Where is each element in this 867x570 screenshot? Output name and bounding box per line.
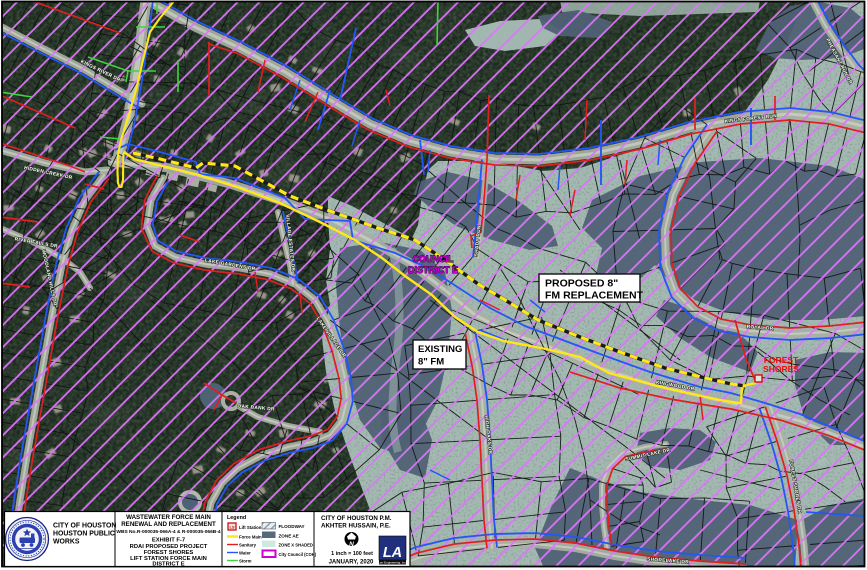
svg-text:DISTRICT E: DISTRICT E — [408, 265, 458, 275]
svg-text:AKHTER HUSSAIN, P.E.: AKHTER HUSSAIN, P.E. — [321, 523, 391, 530]
svg-text:ZONE X SHADED: ZONE X SHADED — [279, 543, 313, 548]
svg-text:CITY OF HOUSTON: CITY OF HOUSTON — [53, 523, 116, 530]
svg-text:EXISTING: EXISTING — [418, 344, 462, 355]
svg-text:1 inch = 100 feet: 1 inch = 100 feet — [331, 551, 373, 557]
svg-text:SHORES: SHORES — [763, 364, 799, 374]
svg-text:LA: LA — [383, 545, 402, 561]
svg-text:FLOODWAY: FLOODWAY — [279, 524, 305, 529]
svg-text:WORKS: WORKS — [53, 539, 80, 546]
svg-text:RENEWAL AND REPLACEMENT: RENEWAL AND REPLACEMENT — [121, 521, 216, 528]
svg-text:WASTEWATER FORCE MAIN: WASTEWATER FORCE MAIN — [126, 514, 211, 521]
svg-text:Lift Station: Lift Station — [239, 525, 262, 530]
svg-text:JANUARY, 2020: JANUARY, 2020 — [329, 560, 374, 566]
svg-text:City Council (COH): City Council (COH) — [279, 552, 317, 557]
svg-text:COUNCIL: COUNCIL — [413, 254, 454, 264]
svg-text:8" FM: 8" FM — [418, 357, 444, 368]
svg-text:LS: LS — [229, 525, 234, 530]
svg-text:FM REPLACEMENT: FM REPLACEMENT — [545, 290, 644, 302]
svg-text:ZONE AE: ZONE AE — [279, 534, 299, 539]
svg-text:Water: Water — [239, 551, 251, 556]
svg-text:HOUSTON PUBLIC: HOUSTON PUBLIC — [53, 531, 115, 538]
svg-text:WBS No.R-000035-066A-4 & R-000: WBS No.R-000035-066A-4 & R-000035-066B-4 — [116, 529, 220, 535]
svg-text:EXHIBIT F-7: EXHIBIT F-7 — [152, 538, 185, 544]
svg-text:Sanitary: Sanitary — [239, 543, 257, 548]
svg-text:Lan Engineering, Inc.: Lan Engineering, Inc. — [378, 561, 407, 565]
svg-text:CITY OF HOUSTON P.M.: CITY OF HOUSTON P.M. — [321, 515, 392, 522]
svg-text:PROPOSED 8": PROPOSED 8" — [545, 278, 618, 290]
svg-text:Legend: Legend — [227, 515, 246, 521]
svg-text:Force Main: Force Main — [239, 535, 262, 540]
svg-text:DISTRICT E: DISTRICT E — [152, 562, 184, 568]
svg-text:N: N — [349, 541, 354, 548]
svg-text:Storm: Storm — [239, 559, 252, 564]
